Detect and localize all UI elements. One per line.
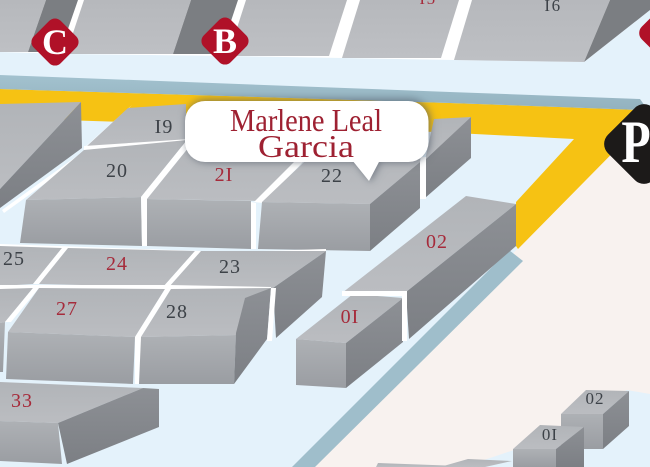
svg-text:28: 28 [166, 301, 188, 323]
svg-text:24: 24 [106, 253, 128, 275]
svg-text:22: 22 [321, 165, 343, 187]
svg-text:I6: I6 [544, 0, 561, 15]
svg-text:27: 27 [56, 298, 78, 320]
svg-text:Garcia: Garcia [258, 128, 354, 164]
svg-text:02: 02 [426, 231, 448, 253]
svg-text:02: 02 [586, 389, 605, 408]
svg-text:B: B [213, 21, 237, 61]
svg-text:23: 23 [219, 256, 241, 278]
svg-text:25: 25 [3, 248, 25, 270]
svg-text:33: 33 [11, 390, 33, 412]
svg-text:20: 20 [106, 160, 128, 182]
svg-text:I5: I5 [419, 0, 436, 8]
svg-text:0I: 0I [542, 425, 558, 444]
svg-text:C: C [42, 22, 68, 62]
svg-text:0I: 0I [341, 306, 360, 328]
svg-text:P: P [621, 109, 650, 175]
svg-text:2I: 2I [215, 164, 234, 186]
svg-text:I9: I9 [155, 116, 174, 138]
